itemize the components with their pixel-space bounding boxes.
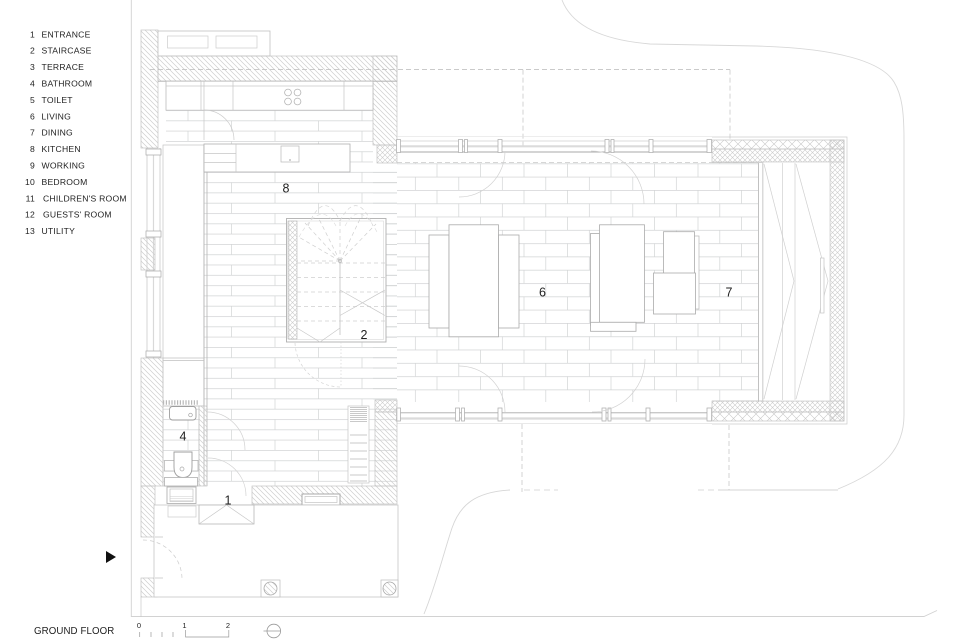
svg-text:LIVING: LIVING [42,111,72,121]
svg-text:3: 3 [30,62,35,72]
svg-text:CHILDREN'S ROOM: CHILDREN'S ROOM [43,193,127,203]
svg-text:1: 1 [182,621,186,630]
svg-text:6: 6 [30,111,35,121]
svg-text:12: 12 [25,210,35,220]
svg-text:5: 5 [30,95,35,105]
svg-text:4: 4 [180,430,187,444]
svg-text:BEDROOM: BEDROOM [42,177,88,187]
svg-text:11: 11 [26,193,35,203]
svg-text:TOILET: TOILET [42,95,74,105]
svg-text:8: 8 [283,182,290,196]
svg-text:2: 2 [361,328,368,342]
svg-text:6: 6 [539,286,546,300]
svg-text:DINING: DINING [42,128,73,138]
svg-text:BATHROOM: BATHROOM [42,79,93,89]
svg-text:4: 4 [30,79,35,89]
svg-text:2: 2 [226,621,230,630]
svg-text:2: 2 [30,46,35,56]
svg-text:7: 7 [30,128,35,138]
svg-text:9: 9 [30,161,35,171]
svg-text:13: 13 [25,226,35,236]
svg-text:0: 0 [137,621,141,630]
svg-text:UTILITY: UTILITY [42,226,76,236]
svg-text:10: 10 [25,177,35,187]
svg-text:8: 8 [30,144,35,154]
svg-text:GUESTS' ROOM: GUESTS' ROOM [43,210,112,220]
svg-text:GROUND FLOOR: GROUND FLOOR [34,626,114,637]
svg-text:1: 1 [30,29,35,39]
svg-text:7: 7 [726,286,733,300]
svg-text:ENTRANCE: ENTRANCE [42,29,91,39]
svg-text:TERRACE: TERRACE [42,62,85,72]
svg-text:WORKING: WORKING [42,161,86,171]
svg-text:STAIRCASE: STAIRCASE [42,46,92,56]
svg-text:1: 1 [225,494,232,508]
svg-text:KITCHEN: KITCHEN [42,144,81,154]
